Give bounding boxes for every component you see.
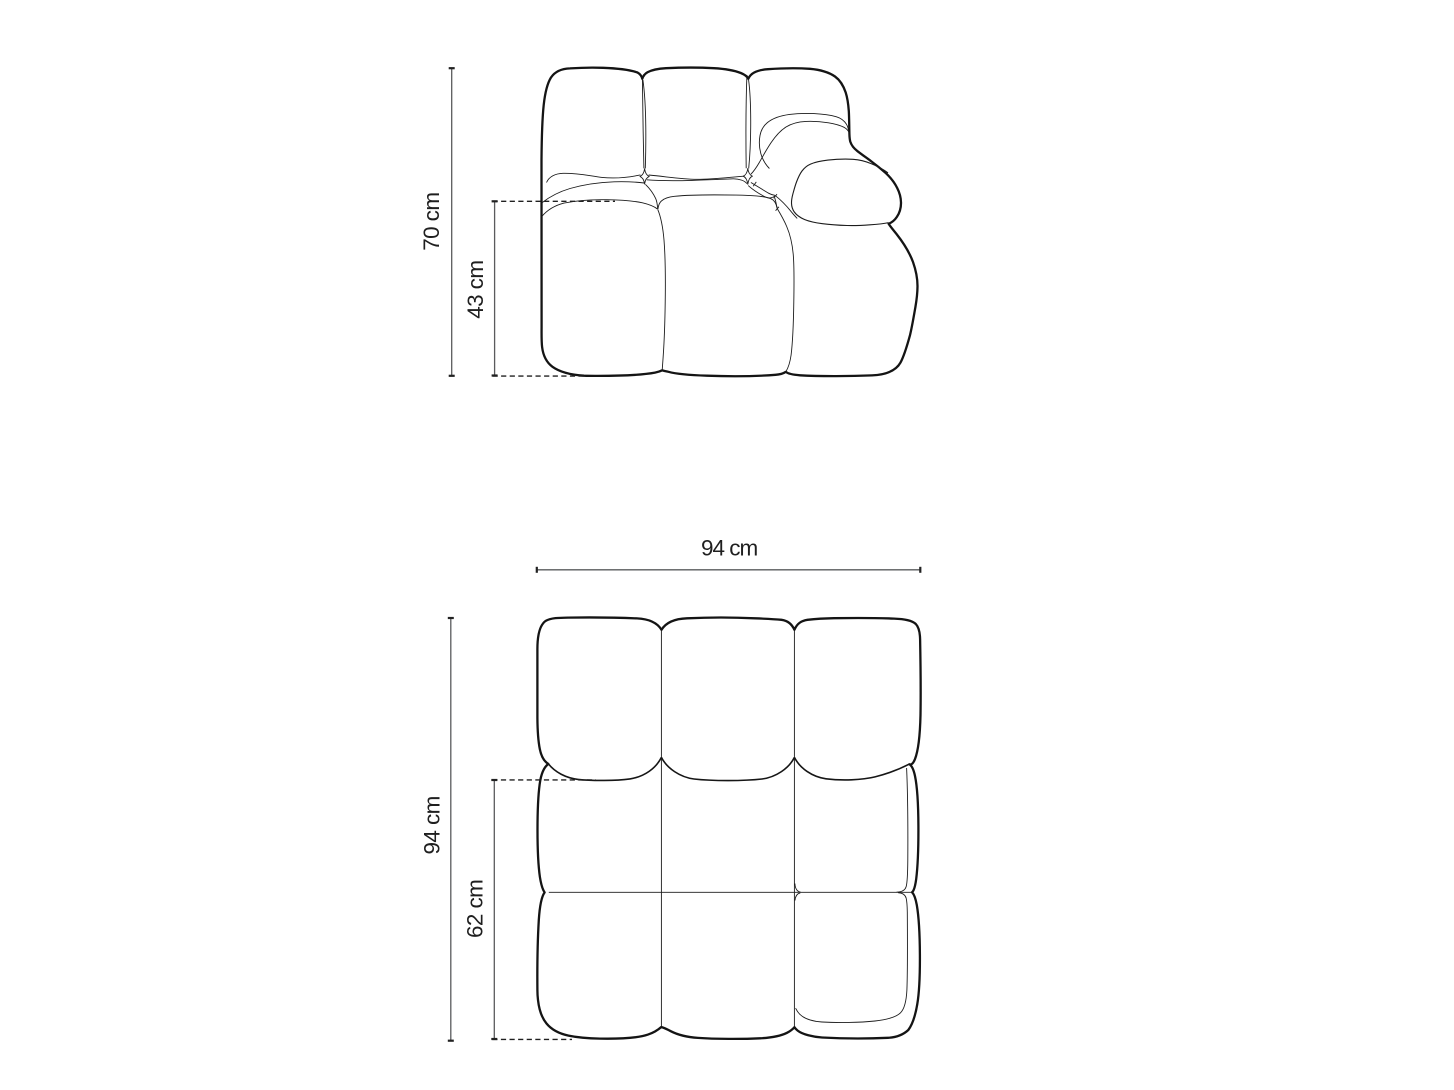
svg-text:70 cm: 70 cm: [419, 193, 444, 251]
svg-text:94 cm: 94 cm: [420, 796, 445, 854]
svg-text:43 cm: 43 cm: [463, 261, 488, 319]
svg-text:62 cm: 62 cm: [463, 880, 488, 938]
svg-text:94 cm: 94 cm: [701, 536, 758, 561]
